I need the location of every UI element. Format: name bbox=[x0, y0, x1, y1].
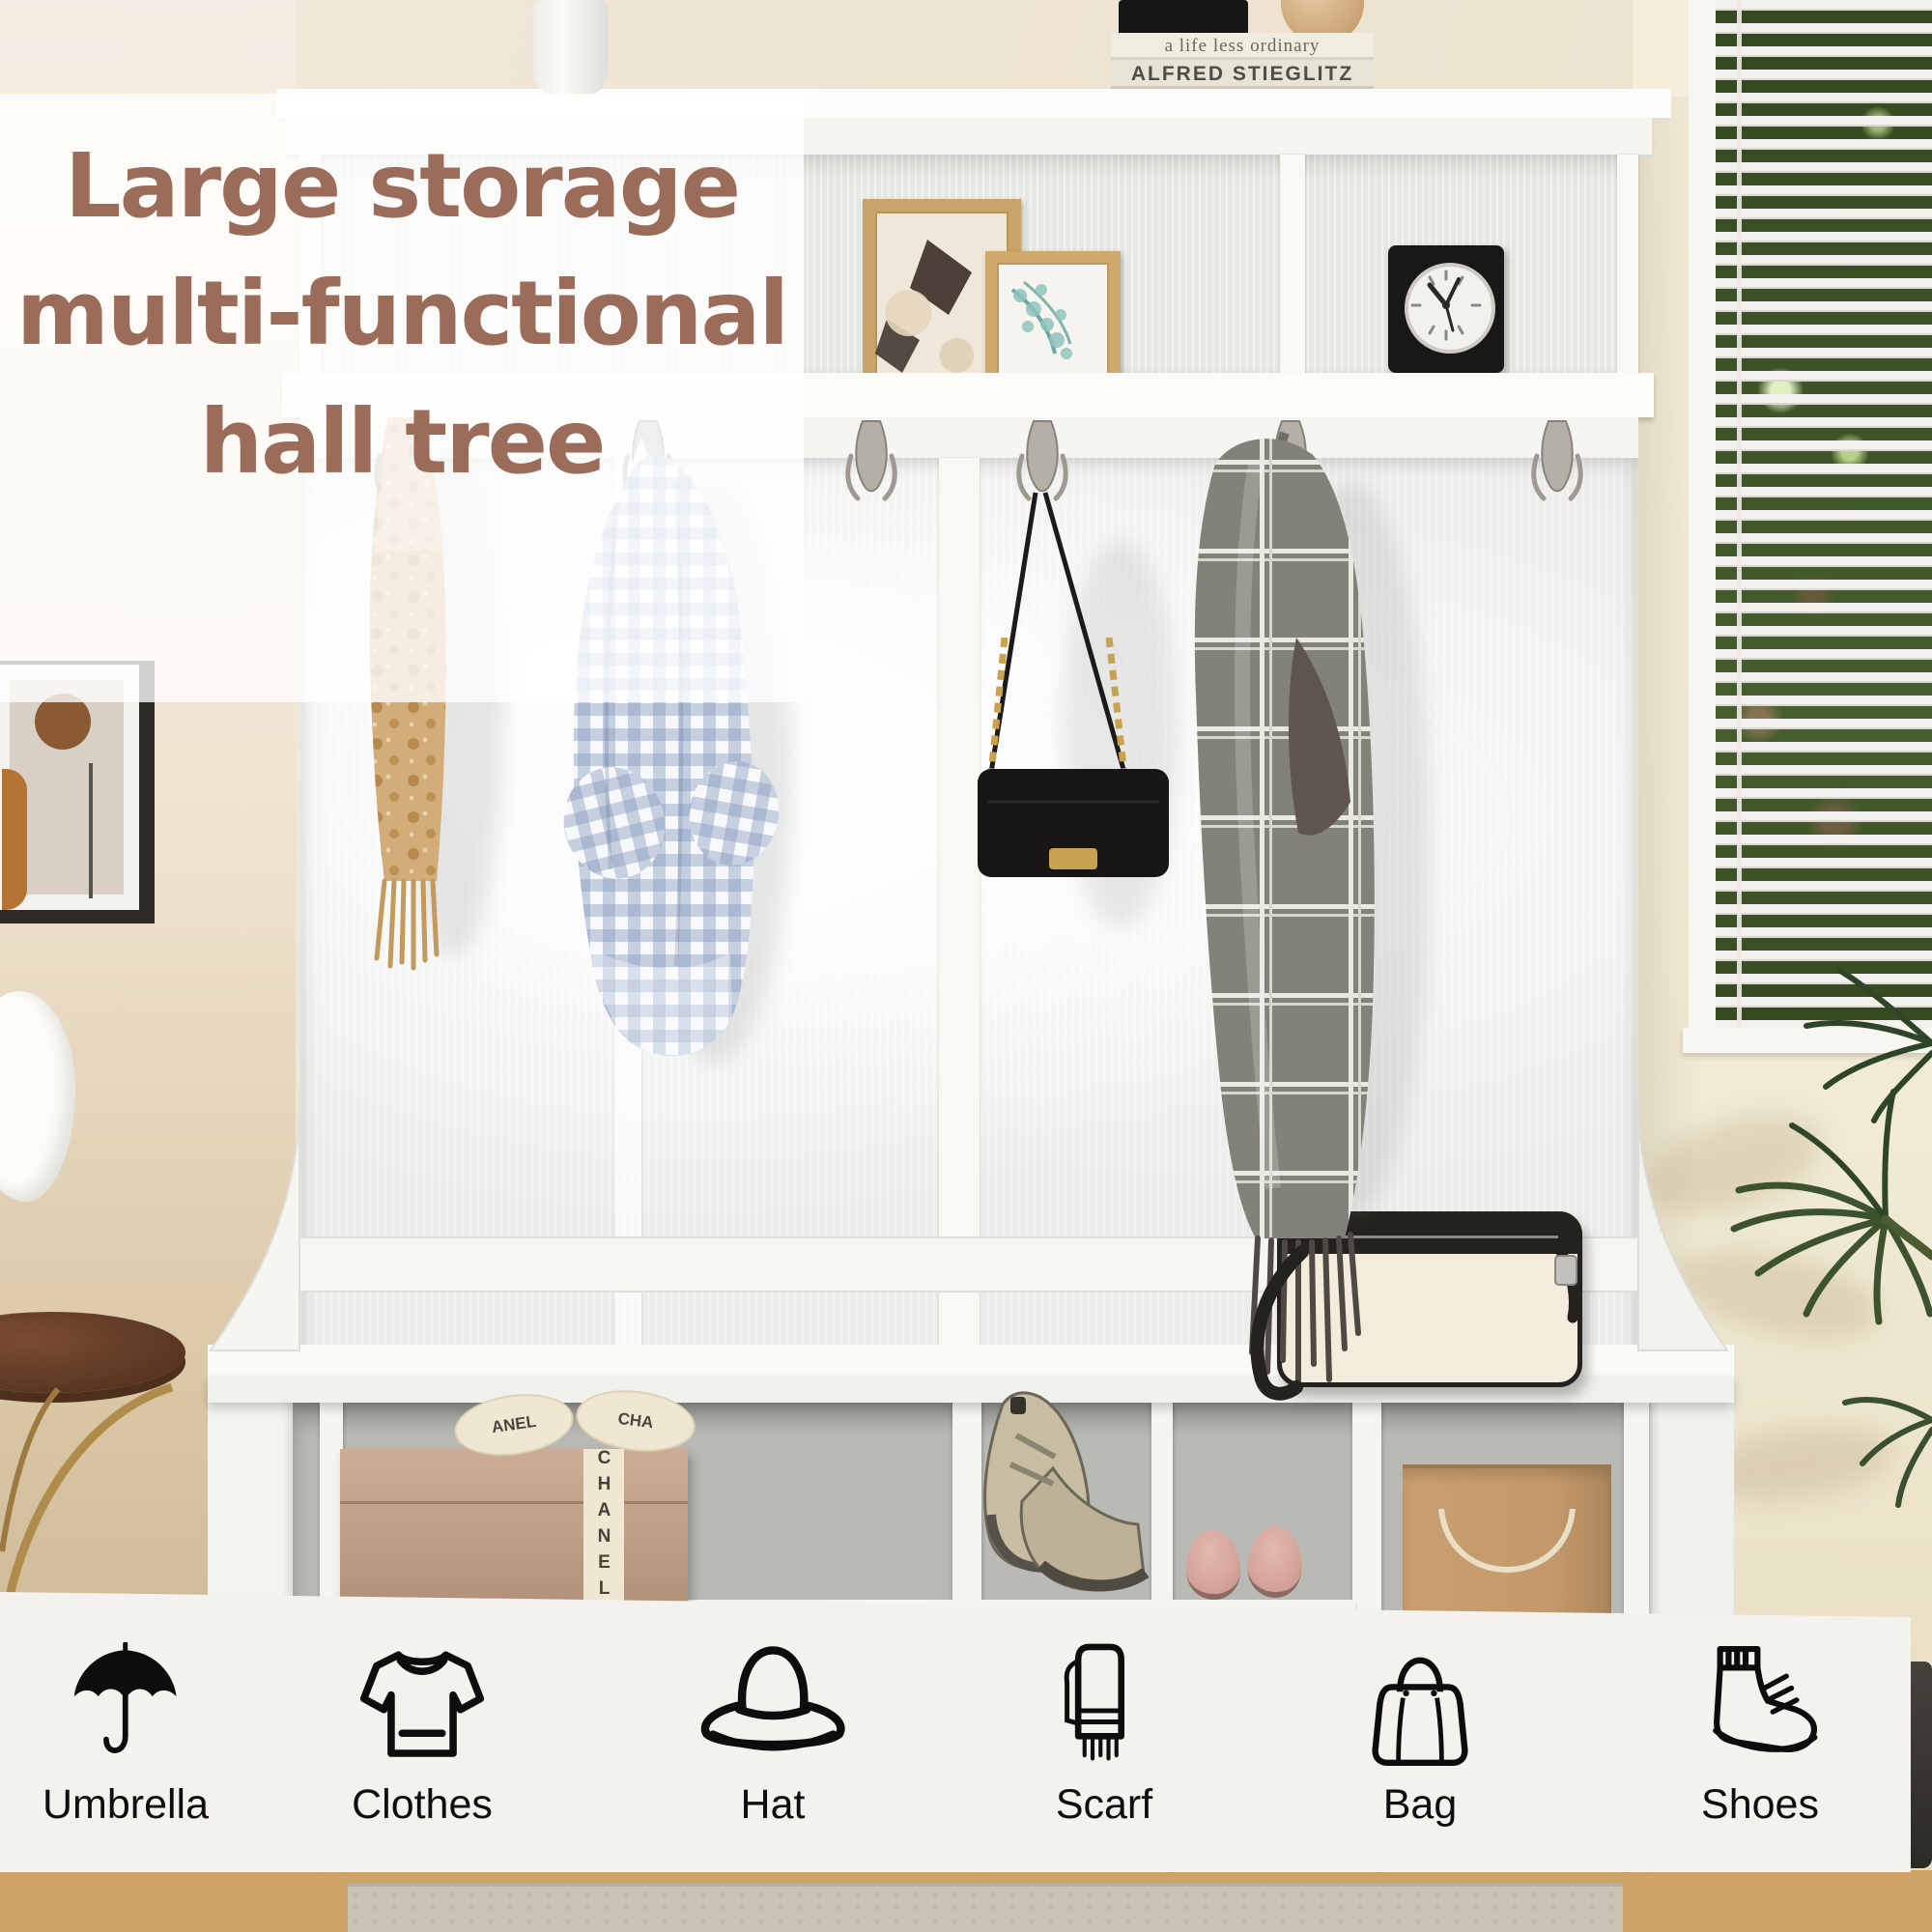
frame-artwork-large bbox=[875, 240, 975, 373]
feature-label: Clothes bbox=[352, 1781, 493, 1829]
product-image: a life less ordinary ALFRED STIEGLITZ CH… bbox=[0, 0, 1932, 1932]
headline-line-1: Large storage bbox=[65, 123, 739, 250]
hanging-blanket bbox=[1195, 433, 1375, 1383]
feature-label: Umbrella bbox=[43, 1781, 209, 1829]
feature-label: Bag bbox=[1383, 1781, 1458, 1829]
feature-label: Shoes bbox=[1701, 1781, 1819, 1829]
feature-label: Hat bbox=[741, 1781, 806, 1829]
headline-line-3: hall tree bbox=[200, 379, 605, 506]
feature-umbrella: Umbrella bbox=[0, 1642, 251, 1829]
shoes-icon bbox=[1696, 1642, 1824, 1770]
clock-hands bbox=[1412, 271, 1480, 339]
bag-icon bbox=[1366, 1642, 1474, 1770]
side-bracket-right bbox=[1638, 1092, 1727, 1350]
frame-artwork-small bbox=[1012, 282, 1072, 359]
headline-line-2: multi-functional bbox=[16, 250, 787, 378]
side-table-leg bbox=[2, 1387, 172, 1625]
feature-bar: Umbrella Clothes Hat bbox=[0, 1592, 1911, 1872]
hat-icon bbox=[696, 1642, 849, 1770]
feature-shoes: Shoes bbox=[1634, 1642, 1886, 1829]
clothes-icon bbox=[358, 1642, 486, 1770]
crossbody-strap bbox=[1258, 1252, 1577, 1394]
paper-bag-handle bbox=[1441, 1509, 1573, 1570]
palm-plant bbox=[1734, 971, 1932, 1505]
feature-hat: Hat bbox=[647, 1642, 898, 1829]
headline-overlay: Large storage multi-functional hall tree bbox=[0, 94, 804, 702]
scarf-icon bbox=[1061, 1642, 1149, 1770]
side-bracket-left bbox=[211, 1092, 299, 1350]
feature-scarf: Scarf bbox=[979, 1642, 1230, 1829]
feature-clothes: Clothes bbox=[297, 1642, 548, 1829]
umbrella-icon bbox=[70, 1642, 182, 1770]
sneakers bbox=[985, 1393, 1146, 1590]
feature-label: Scarf bbox=[1056, 1781, 1152, 1829]
feature-bag: Bag bbox=[1294, 1642, 1546, 1829]
